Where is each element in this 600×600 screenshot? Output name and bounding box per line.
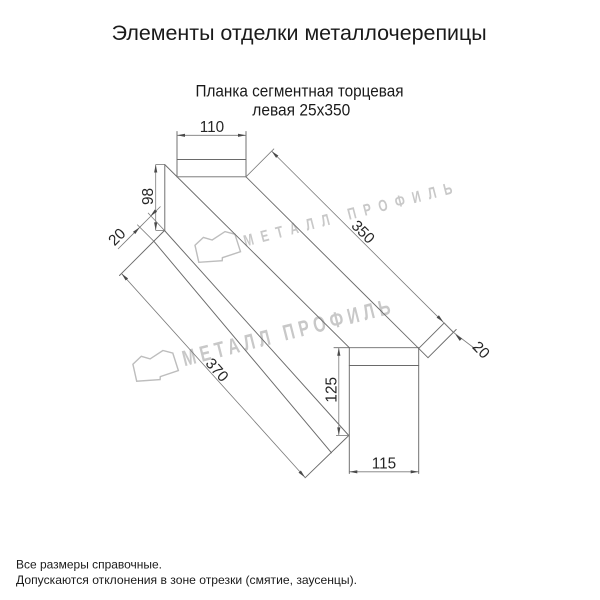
svg-text:Элементы отделки металлочерепи: Элементы отделки металлочерепицы — [112, 22, 487, 45]
svg-text:Планка сегментная торцевая: Планка сегментная торцевая — [196, 82, 404, 100]
svg-text:Допускаются отклонения в зоне: Допускаются отклонения в зоне отрезки (с… — [16, 574, 357, 587]
svg-text:левая 25х350: левая 25х350 — [252, 102, 350, 120]
svg-text:115: 115 — [372, 455, 396, 472]
svg-text:125: 125 — [324, 377, 341, 403]
svg-text:98: 98 — [140, 188, 157, 205]
svg-text:Все размеры справочные.: Все размеры справочные. — [16, 558, 162, 571]
svg-text:110: 110 — [200, 119, 224, 136]
